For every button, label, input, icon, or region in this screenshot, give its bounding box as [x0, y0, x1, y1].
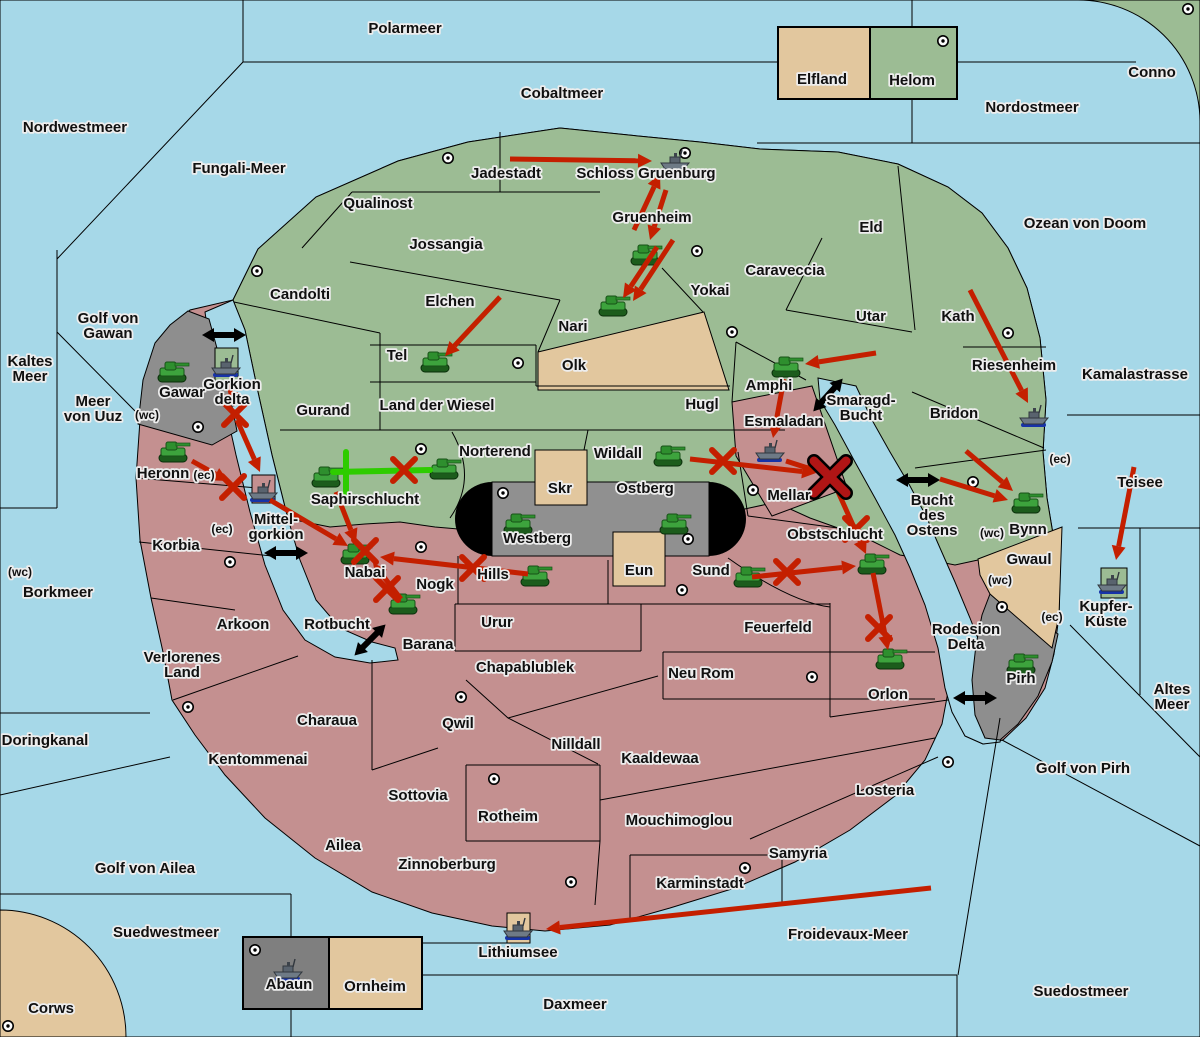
- label-samyria: SamyriaSamyria: [769, 845, 828, 862]
- label-text: Utar: [856, 308, 886, 325]
- label-kupfer-k-ste: Kupfer-KüsteKupfer-Küste: [1079, 598, 1132, 630]
- label-text: Candolti: [270, 286, 330, 303]
- supply-center-dot: [692, 246, 702, 256]
- label-caraveccia: CaravecciaCaraveccia: [745, 262, 825, 279]
- label-riesenheim: RiesenheimRiesenheim: [972, 357, 1056, 374]
- label-eun: EunEun: [625, 562, 653, 579]
- label-elfland: ElflandElfland: [797, 71, 847, 88]
- label-suedostmeer: SuedostmeerSuedostmeer: [1033, 983, 1128, 1000]
- label-text: Tel: [387, 347, 408, 364]
- label-bynn: BynnBynn: [1009, 521, 1047, 538]
- label-wc: (wc)(wc): [980, 526, 1004, 540]
- supply-center-dot: [183, 702, 193, 712]
- label-text: Kamalastrasse: [1082, 366, 1188, 383]
- label-ec: (ec)(ec): [193, 468, 214, 482]
- label-text: Land der Wiesel: [380, 397, 495, 414]
- label-text: Orlon: [868, 686, 908, 703]
- label-ailea: AileaAilea: [325, 837, 362, 854]
- label-text: Hills: [477, 566, 509, 583]
- label-abaun: AbaunAbaun: [266, 976, 313, 993]
- label-text: Bynn: [1009, 521, 1047, 538]
- label-text: Ostberg: [616, 480, 674, 497]
- label-text: Chapablublek: [476, 659, 575, 676]
- supply-center-dot: [225, 557, 235, 567]
- label-corws: CorwsCorws: [28, 1000, 74, 1017]
- supply-center-dot: [416, 542, 426, 552]
- label-text: Suedwestmeer: [113, 924, 219, 941]
- label-ec: (ec)(ec): [211, 522, 232, 536]
- label-golf-von-ailea: Golf von AileaGolf von Ailea: [95, 860, 196, 877]
- label-text: Barana: [403, 636, 455, 653]
- elfland-box[interactable]: [778, 27, 870, 99]
- supply-center-dot: [677, 585, 687, 595]
- label-kaaldewaa: KaaldewaaKaaldewaa: [621, 750, 699, 767]
- label-ec: (ec)(ec): [1049, 452, 1070, 466]
- label-text: Esmaladan: [744, 413, 823, 430]
- label-text: Westberg: [503, 530, 571, 547]
- label-text: Urur: [481, 614, 513, 631]
- label-gwaul: GwaulGwaul: [1006, 551, 1051, 568]
- label-hugl: HuglHugl: [685, 396, 718, 413]
- label-text: Hugl: [685, 396, 718, 413]
- label-text: Conno: [1128, 64, 1175, 81]
- label-text: Riesenheim: [972, 357, 1056, 374]
- label-tel: TelTel: [387, 347, 408, 364]
- label-text: Suedostmeer: [1033, 983, 1128, 1000]
- label-saphirschlucht: SaphirschluchtSaphirschlucht: [311, 491, 419, 508]
- label-text: Daxmeer: [543, 996, 607, 1013]
- label-wc: (wc)(wc): [135, 408, 159, 422]
- label-text: Norterend: [459, 443, 531, 460]
- label-wc: (wc)(wc): [988, 573, 1012, 587]
- supply-center-dot: [489, 774, 499, 784]
- label-text: Schloss Gruenburg: [576, 165, 715, 182]
- label-neu-rom: Neu RomNeu Rom: [668, 665, 734, 682]
- label-candolti: CandoltiCandolti: [270, 286, 330, 303]
- supply-center-dot: [807, 672, 817, 682]
- label-text: Korbia: [152, 537, 200, 554]
- label-text: Doringkanal: [2, 732, 89, 749]
- label-text: Nari: [558, 318, 587, 335]
- label-text: Sund: [692, 562, 730, 579]
- label-korbia: KorbiaKorbia: [152, 537, 200, 554]
- label-borkmeer: BorkmeerBorkmeer: [23, 584, 93, 601]
- label-text: Nogk: [416, 576, 454, 593]
- supply-center-dot: [727, 327, 737, 337]
- label-text: Mittel-gorkion: [249, 511, 304, 543]
- label-text: Gawar: [159, 384, 205, 401]
- label-teisee: TeiseeTeisee: [1117, 474, 1163, 491]
- label-losteria: LosteriaLosteria: [856, 782, 915, 799]
- label-text: Pirh: [1006, 670, 1035, 687]
- label-text: Qwil: [442, 715, 474, 732]
- label-text: Mouchimoglou: [626, 812, 733, 829]
- game-map: PolarmeerPolarmeerCobaltmeerCobaltmeerNo…: [0, 0, 1200, 1037]
- label-gawar: GawarGawar: [159, 384, 205, 401]
- label-urur: UrurUrur: [481, 614, 513, 631]
- label-lithiumsee: LithiumseeLithiumsee: [478, 944, 557, 961]
- label-text: Yokai: [691, 282, 730, 299]
- label-mittel-gorkion: Mittel-gorkionMittel-gorkion: [249, 511, 304, 543]
- label-text: Mellar: [767, 487, 811, 504]
- label-text: Gwaul: [1006, 551, 1051, 568]
- label-text: Corws: [28, 1000, 74, 1017]
- label-text: Samyria: [769, 845, 828, 862]
- label-gruenheim: GruenheimGruenheim: [612, 209, 691, 226]
- label-text: Elfland: [797, 71, 847, 88]
- label-qualinost: QualinostQualinost: [343, 195, 412, 212]
- label-charaua: CharauaCharaua: [297, 712, 358, 729]
- label-ostberg: OstbergOstberg: [616, 480, 674, 497]
- label-nordostmeer: NordostmeerNordostmeer: [985, 99, 1079, 116]
- label-wc: (wc)(wc): [8, 565, 32, 579]
- label-arkoon: ArkoonArkoon: [217, 616, 270, 633]
- label-utar: UtarUtar: [856, 308, 886, 325]
- label-text: Nilldall: [551, 736, 600, 753]
- label-text: Saphirschlucht: [311, 491, 419, 508]
- terrain-layer: [0, 0, 1200, 1037]
- label-nari: NariNari: [558, 318, 587, 335]
- label-polarmeer: PolarmeerPolarmeer: [368, 20, 442, 37]
- label-text: Lithiumsee: [478, 944, 557, 961]
- label-rotheim: RotheimRotheim: [478, 808, 538, 825]
- label-nordwestmeer: NordwestmeerNordwestmeer: [23, 119, 127, 136]
- supply-center-dot: [416, 444, 426, 454]
- label-text: Kaaldewaa: [621, 750, 699, 767]
- label-mouchimoglou: MouchimoglouMouchimoglou: [626, 812, 733, 829]
- label-kentommenai: KentommenaiKentommenai: [208, 751, 307, 768]
- supply-center-dot: [943, 757, 953, 767]
- label-text: Obstschlucht: [787, 526, 883, 543]
- label-ornheim: OrnheimOrnheim: [344, 978, 406, 995]
- label-pirh: PirhPirh: [1006, 670, 1035, 687]
- label-text: Sottovia: [388, 787, 448, 804]
- label-heronn: HeronnHeronn: [137, 465, 190, 482]
- label-obstschlucht: ObstschluchtObstschlucht: [787, 526, 883, 543]
- label-text: AltesMeer: [1154, 681, 1191, 713]
- label-kath: KathKath: [941, 308, 974, 325]
- supply-center-dot: [1183, 4, 1193, 14]
- label-karminstadt: KarminstadtKarminstadt: [656, 875, 744, 892]
- label-conno: ConnoConno: [1128, 64, 1175, 81]
- supply-center-dot: [740, 863, 750, 873]
- label-amphi: AmphiAmphi: [746, 377, 793, 394]
- label-text: Golf von Ailea: [95, 860, 196, 877]
- label-gurand: GurandGurand: [296, 402, 349, 419]
- label-schloss-gruenburg: Schloss GruenburgSchloss Gruenburg: [576, 165, 715, 182]
- label-text: Kentommenai: [208, 751, 307, 768]
- supply-center-dot: [513, 358, 523, 368]
- label-text: (wc): [135, 408, 159, 422]
- supply-center-dot: [566, 877, 576, 887]
- label-text: Eld: [859, 219, 882, 236]
- supply-center-dot: [252, 266, 262, 276]
- label-text: KaltesMeer: [7, 353, 52, 385]
- label-feuerfeld: FeuerfeldFeuerfeld: [744, 619, 812, 636]
- label-jadestadt: JadestadtJadestadt: [471, 165, 541, 182]
- label-ozean-von-doom: Ozean von DoomOzean von Doom: [1024, 215, 1147, 232]
- label-sund: SundSund: [692, 562, 730, 579]
- label-text: Cobaltmeer: [521, 85, 604, 102]
- supply-center-dot: [193, 422, 203, 432]
- label-bridon: BridonBridon: [930, 405, 978, 422]
- label-nilldall: NilldallNilldall: [551, 736, 600, 753]
- label-fungali-meer: Fungali-MeerFungali-Meer: [192, 160, 286, 177]
- label-text: (wc): [988, 573, 1012, 587]
- label-text: Jossangia: [409, 236, 483, 253]
- supply-center-dot: [997, 602, 1007, 612]
- label-text: Nabai: [345, 564, 386, 581]
- label-barana: BaranaBarana: [403, 636, 455, 653]
- label-suedwestmeer: SuedwestmeerSuedwestmeer: [113, 924, 219, 941]
- label-text: Helom: [889, 72, 935, 89]
- label-skr: SkrSkr: [548, 480, 572, 497]
- label-helom: HelomHelom: [889, 72, 935, 89]
- label-text: Olk: [562, 357, 587, 374]
- label-text: Rotheim: [478, 808, 538, 825]
- label-nabai: NabaiNabai: [345, 564, 386, 581]
- label-text: Fungali-Meer: [192, 160, 286, 177]
- label-nogk: NogkNogk: [416, 576, 454, 593]
- label-text: Eun: [625, 562, 653, 579]
- label-orlon: OrlonOrlon: [868, 686, 908, 703]
- supply-center-dot: [938, 36, 948, 46]
- label-text: Teisee: [1117, 474, 1163, 491]
- label-qwil: QwilQwil: [442, 715, 474, 732]
- supply-center-dot: [443, 153, 453, 163]
- label-doringkanal: DoringkanalDoringkanal: [2, 732, 89, 749]
- label-text: Neu Rom: [668, 665, 734, 682]
- label-text: Rotbucht: [304, 616, 370, 633]
- label-text: Gruenheim: [612, 209, 691, 226]
- label-esmaladan: EsmaladanEsmaladan: [744, 413, 823, 430]
- label-text: Froidevaux-Meer: [788, 926, 908, 943]
- label-text: Gurand: [296, 402, 349, 419]
- label-norterend: NorterendNorterend: [459, 443, 531, 460]
- supply-center-dot: [498, 488, 508, 498]
- label-mellar: MellarMellar: [767, 487, 811, 504]
- label-zinnoberburg: ZinnoberburgZinnoberburg: [398, 856, 496, 873]
- label-wildall: WildallWildall: [594, 445, 642, 462]
- label-text: Ozean von Doom: [1024, 215, 1147, 232]
- label-text: (wc): [8, 565, 32, 579]
- supply-center-dot: [3, 1021, 13, 1031]
- supply-center-dot: [683, 534, 693, 544]
- label-olk: OlkOlk: [562, 357, 587, 374]
- supply-center-dot: [250, 945, 260, 955]
- label-text: Ornheim: [344, 978, 406, 995]
- label-text: Arkoon: [217, 616, 270, 633]
- label-text: (ec): [1041, 610, 1062, 624]
- label-golf-von-pirh: Golf von PirhGolf von Pirh: [1036, 760, 1130, 777]
- label-text: Amphi: [746, 377, 793, 394]
- label-cobaltmeer: CobaltmeerCobaltmeer: [521, 85, 604, 102]
- label-text: Zinnoberburg: [398, 856, 496, 873]
- label-chapablublek: ChapablublekChapablublek: [476, 659, 575, 676]
- label-altes-meer: AltesMeerAltesMeer: [1154, 681, 1191, 713]
- label-text: Jadestadt: [471, 165, 541, 182]
- label-text: Caraveccia: [745, 262, 825, 279]
- label-hills: HillsHills: [477, 566, 509, 583]
- label-text: Kupfer-Küste: [1079, 598, 1132, 630]
- label-text: Losteria: [856, 782, 915, 799]
- label-golf-von-gawan: Golf vonGawanGolf vonGawan: [78, 310, 139, 342]
- label-jossangia: JossangiaJossangia: [409, 236, 483, 253]
- label-rotbucht: RotbuchtRotbucht: [304, 616, 370, 633]
- label-kamalastrasse: KamalastrasseKamalastrasse: [1082, 366, 1188, 383]
- label-text: Kath: [941, 308, 974, 325]
- label-text: Polarmeer: [368, 20, 442, 37]
- label-elchen: ElchenElchen: [425, 293, 474, 310]
- label-text: Karminstadt: [656, 875, 744, 892]
- ornheim-box[interactable]: [329, 937, 422, 1009]
- label-text: Golf von Pirh: [1036, 760, 1130, 777]
- label-text: Wildall: [594, 445, 642, 462]
- label-text: Heronn: [137, 465, 190, 482]
- label-text: Ailea: [325, 837, 362, 854]
- label-text: Elchen: [425, 293, 474, 310]
- label-text: Charaua: [297, 712, 358, 729]
- label-daxmeer: DaxmeerDaxmeer: [543, 996, 607, 1013]
- label-text: Feuerfeld: [744, 619, 812, 636]
- label-text: Golf vonGawan: [78, 310, 139, 342]
- label-text: (ec): [193, 468, 214, 482]
- label-text: (ec): [211, 522, 232, 536]
- label-ec: (ec)(ec): [1041, 610, 1062, 624]
- label-kaltes-meer: KaltesMeerKaltesMeer: [7, 353, 52, 385]
- label-eld: EldEld: [859, 219, 882, 236]
- label-froidevaux-meer: Froidevaux-MeerFroidevaux-Meer: [788, 926, 908, 943]
- label-land-der-wiesel: Land der WieselLand der Wiesel: [380, 397, 495, 414]
- label-text: Qualinost: [343, 195, 412, 212]
- supply-center-dot: [1003, 328, 1013, 338]
- label-text: (wc): [980, 526, 1004, 540]
- supply-center-dot: [748, 485, 758, 495]
- label-text: Abaun: [266, 976, 313, 993]
- label-text: Bridon: [930, 405, 978, 422]
- label-text: Borkmeer: [23, 584, 93, 601]
- label-westberg: WestbergWestberg: [503, 530, 571, 547]
- label-text: Skr: [548, 480, 572, 497]
- label-sottovia: SottoviaSottovia: [388, 787, 448, 804]
- label-text: Nordwestmeer: [23, 119, 127, 136]
- supply-center-dot: [456, 692, 466, 702]
- label-text: (ec): [1049, 452, 1070, 466]
- label-yokai: YokaiYokai: [691, 282, 730, 299]
- label-text: Nordostmeer: [985, 99, 1079, 116]
